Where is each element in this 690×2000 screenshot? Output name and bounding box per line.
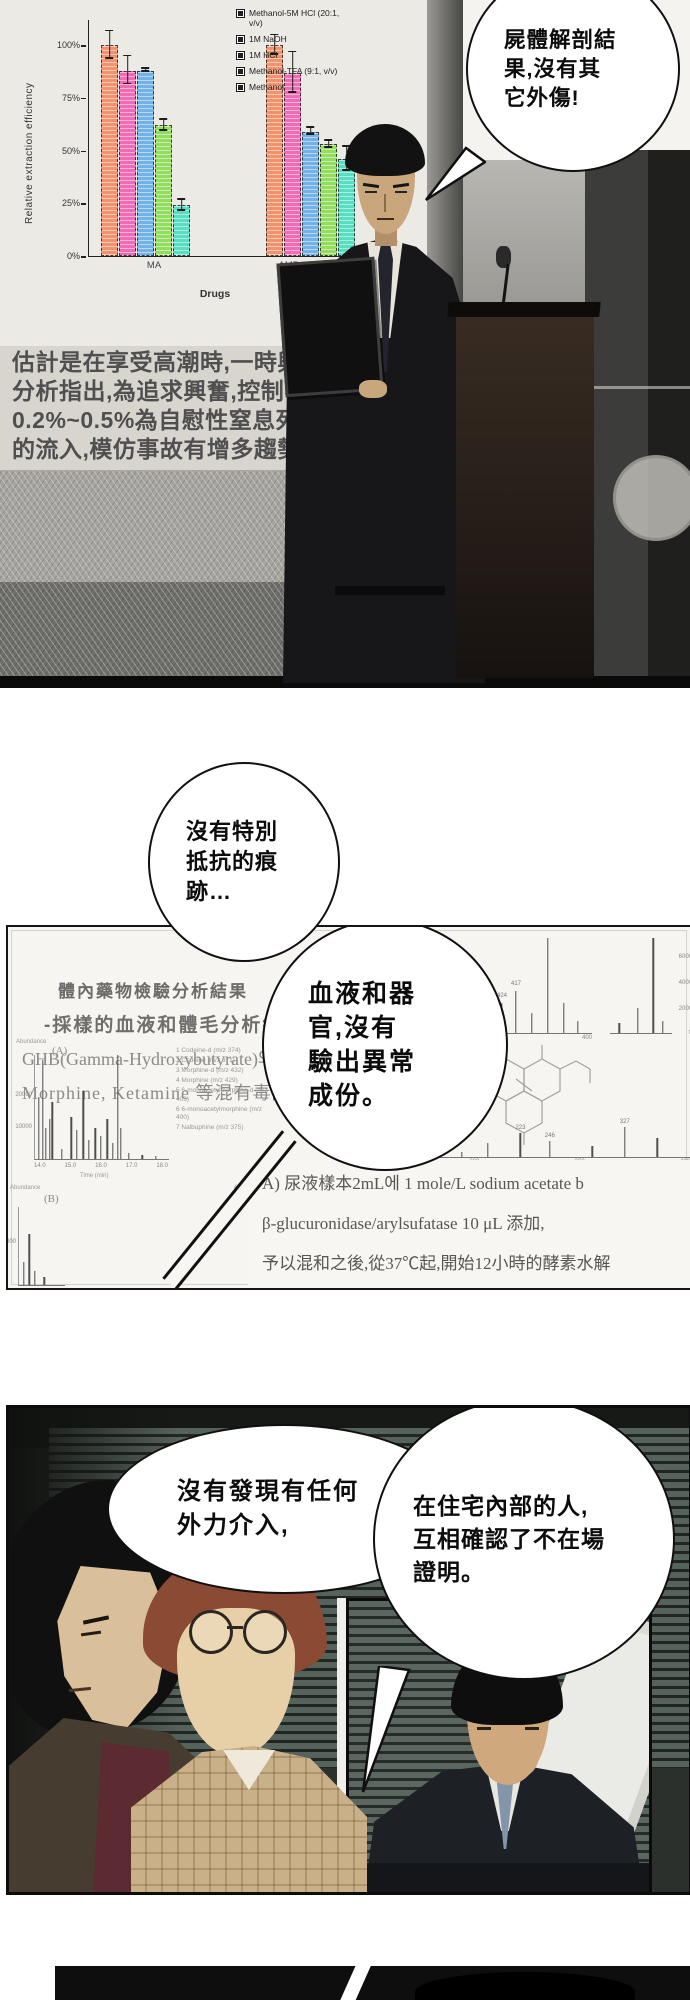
chromatogram-b (18, 1207, 65, 1286)
bubble-tail (424, 146, 486, 202)
legend-item: 1M NaOH (236, 34, 352, 44)
y-tick: 100% (57, 40, 80, 50)
eye (525, 1727, 539, 1730)
podium-body (456, 317, 594, 678)
category-ma: MA (147, 260, 161, 271)
procedure-text-line: β-glucuronidase/arylsufatase 10 μL 添加, (262, 1204, 690, 1244)
panel-conference: Relative extraction efficiency 100%75%50… (0, 0, 690, 688)
speech-bubble-alibi-line: 證明。 (413, 1556, 673, 1589)
tick-label: 4000 (679, 980, 690, 986)
y-tick: 50% (62, 146, 80, 156)
procedure-text-line: A) 尿液樣本2mL에 1 mole/L sodium acetate b (262, 1164, 690, 1204)
speech-bubble-autopsy-line: 果,沒有其 (504, 55, 678, 84)
y-tick: 25% (62, 198, 80, 208)
eye (365, 191, 377, 193)
procedure-text: A) 尿液樣本2mL에 1 mole/L sodium acetate bβ-g… (248, 1160, 690, 1288)
tick-label: 17.0 (126, 1163, 138, 1169)
podium-top (447, 302, 601, 317)
speech-bubble-blood-organs-line: 血液和器 (308, 977, 506, 1011)
peak-label: 223 (515, 1125, 525, 1131)
legend-marker-icon (236, 51, 245, 60)
speech-bubble-no-resistance-line: 抵抗的痕 (186, 847, 338, 877)
legend-label: 1M NaOH (249, 34, 287, 44)
bar-MA-Methanol (173, 205, 190, 256)
comic-page: Relative extraction efficiency 100%75%50… (0, 0, 690, 2000)
peak (76, 1130, 77, 1159)
bar-group-ma (101, 20, 190, 256)
peak (61, 1149, 62, 1159)
legend-item: Methanol-5M HCl (20:1, v/v) (236, 8, 352, 28)
mouth (377, 218, 394, 220)
detective-glasses-figure (131, 1550, 367, 1895)
peak (128, 1153, 129, 1159)
element (524, 1059, 560, 1101)
eye (395, 191, 407, 193)
peak (461, 1152, 462, 1157)
speech-bubble-alibi: 在住宅內部的人,互相確認了不在場證明。 (373, 1405, 675, 1680)
mass-spectrum-e (610, 933, 672, 1034)
eye (477, 1727, 491, 1730)
desk-man-hand (497, 1729, 539, 1777)
peak (637, 1008, 638, 1033)
peak (83, 1091, 84, 1159)
bar-MA-Methanol-TFA (9:1, v/v) (155, 125, 172, 256)
speech-bubble-blood-organs-line: 驗出異常 (308, 1045, 506, 1079)
speech-bubble-alibi-line: 在住宅內部的人, (413, 1490, 673, 1523)
legend-item: 1M HCl (236, 50, 352, 60)
chromatogram-a (34, 1055, 169, 1160)
glasses-left-lens (189, 1610, 233, 1654)
peak (549, 1141, 550, 1157)
chromatogram-b-label: (B) (44, 1193, 59, 1205)
legend-label: Methanol-TFA (9:1, v/v) (249, 66, 337, 76)
peak (619, 1023, 620, 1033)
tablet-device (276, 257, 383, 398)
tick-label: 20000 (15, 1092, 32, 1098)
abundance-label-b: Abundance (10, 1185, 40, 1191)
peak (520, 1133, 521, 1157)
bar-MA-1M HCl (137, 71, 154, 256)
speech-bubble-autopsy-line: 屍體解剖結 (504, 26, 678, 55)
legend-marker-icon (236, 9, 245, 18)
speech-bubble-blood-organs-line: 官,沒有 (308, 1011, 506, 1045)
tick-label: 2000 (679, 1006, 690, 1012)
peak (591, 1146, 592, 1157)
error-bar (127, 55, 129, 85)
speech-bubble-blood-organs: 血液和器官,沒有驗出異常成份。 (262, 925, 508, 1171)
peak (112, 1143, 113, 1159)
chromatogram-a-legend-line: 2 Codeine (m/z 371) (176, 1057, 272, 1066)
peak (487, 1143, 488, 1157)
error-bar (109, 30, 111, 60)
legend-label: Methanol-5M HCl (20:1, v/v) (249, 8, 352, 28)
glasses-bridge (227, 1626, 243, 1629)
tick-label: 20000 (6, 1239, 16, 1245)
peak (624, 1127, 625, 1157)
bar-MA-Methanol-5M HCl (20:1, v/v) (101, 45, 118, 256)
peak (657, 1138, 658, 1157)
podium (448, 246, 690, 678)
y-axis-ticks: 100%75%50%25%0% (40, 20, 84, 256)
peak-label: 327 (620, 1119, 630, 1125)
chromatogram-a-legend-line: 6 6-monoacetylmorphine (m/z 400) (176, 1106, 272, 1123)
peak-label: 246 (545, 1133, 555, 1139)
error-bar (145, 67, 147, 71)
peak (42, 1060, 43, 1159)
tick-label: 14.0 (34, 1163, 46, 1169)
speech-bubble-autopsy-line: 它外傷! (504, 84, 678, 113)
peak (531, 1013, 532, 1033)
speech-bubble-blood-organs-line: 成份。 (308, 1079, 506, 1113)
procedure-text-line: 予以混和之後,從37℃起,開始12小時的酵素水解 (262, 1244, 690, 1284)
peak (95, 1128, 96, 1159)
peak (155, 1156, 156, 1159)
speech-bubble-no-resistance-line: 沒有特別 (186, 817, 338, 847)
peak (45, 1128, 46, 1159)
diagonal-gap (331, 1966, 372, 2000)
legend-marker-icon (236, 83, 245, 92)
peak (88, 1140, 89, 1159)
chromatogram-a-legend-line: 7 Nalbuphine (m/z 375) (176, 1124, 272, 1133)
speech-bubble-alibi-line: 互相確認了不在場 (413, 1523, 673, 1556)
chromatogram-a-yticks: 2000010000 (10, 1055, 32, 1159)
legend-label: 1M HCl (249, 50, 277, 60)
peak (563, 1003, 564, 1033)
abundance-label-a: Abundance (16, 1039, 46, 1045)
peak (49, 1119, 50, 1159)
mass-spectrum-e-yticks: 6000400020000 (674, 931, 690, 1035)
desk (349, 1863, 652, 1895)
chromatogram-b-yticks: 20000 (6, 1207, 16, 1285)
hair-silhouette (415, 1972, 635, 2000)
peak (34, 1271, 35, 1285)
tick-label: 15.0 (65, 1163, 77, 1169)
element (426, 148, 485, 200)
tick-label: 18.0 (156, 1163, 168, 1169)
legend-item: Methanol (236, 82, 352, 92)
peak (28, 1234, 29, 1285)
chromatogram-a-legend-line: 4 Morphine (m/z 429) (176, 1077, 272, 1086)
y-tick: 75% (62, 93, 80, 103)
legend-label: Methanol (249, 82, 284, 92)
bar-MA-1M NaOH (119, 71, 136, 256)
chromatogram-a-legend-line: 5 6-monoacetylmorphine-d (m/z 403) (176, 1087, 272, 1104)
peak (515, 991, 516, 1033)
panel-lab-report: 體內藥物檢驗分析結果-採樣的血液和體毛分析結果GHB(Gamma-Hydroxy… (6, 925, 690, 1290)
peak (70, 1117, 71, 1159)
legend-marker-icon (236, 35, 245, 44)
tick-label: 16.0 (95, 1163, 107, 1169)
peak (100, 1136, 101, 1159)
brow (363, 183, 379, 188)
y-axis-label: Relative extraction efficiency (24, 48, 38, 258)
peak-label: 417 (511, 981, 521, 987)
legend-item: Methanol-TFA (9:1, v/v) (236, 66, 352, 76)
panel-next-sliver (55, 1966, 690, 2000)
peak (653, 938, 654, 1033)
error-bar (181, 198, 183, 211)
peak (120, 1128, 121, 1159)
nose (384, 194, 386, 212)
speech-bubble-no-resistance-line: 跡… (186, 877, 338, 907)
presenter-belt (335, 586, 445, 595)
alibi-bubble-tail (361, 1666, 421, 1794)
peak (52, 1102, 53, 1159)
chromatogram-a-xticks: 14.015.016.017.018.0 (34, 1163, 168, 1169)
presenter-hair (345, 124, 425, 176)
brow (393, 183, 409, 188)
y-tick: 0% (67, 251, 80, 261)
peak (23, 1262, 24, 1285)
peak (547, 938, 548, 1033)
peak (141, 1155, 142, 1159)
chromatogram-a-legend-line: 3 Morphine-d (m/z 432) (176, 1067, 272, 1076)
presenter-hand (359, 380, 387, 398)
peak (44, 1277, 45, 1285)
time-axis-label: Time (min) (80, 1173, 108, 1179)
peak (662, 1021, 663, 1033)
tick-label: 10000 (15, 1124, 32, 1130)
legend-marker-icon (236, 67, 245, 76)
glasses-right-lens (243, 1610, 287, 1654)
peak (117, 1055, 118, 1159)
chromatogram-a-legend-line: 1 Codeine-d (m/z 374) (176, 1047, 272, 1056)
peak (38, 1097, 39, 1159)
error-bar (163, 118, 165, 131)
chromatogram-a-legend: 1 Codeine-d (m/z 374)2 Codeine (m/z 371)… (176, 1047, 272, 1134)
peak (577, 1021, 578, 1033)
peak (107, 1119, 108, 1159)
chart-legend: Methanol-5M HCl (20:1, v/v)1M NaOH1M HCl… (236, 8, 352, 92)
element (363, 1666, 409, 1792)
speech-bubble-no-resistance: 沒有特別抵抗的痕跡… (148, 762, 340, 962)
panel-office: 沒有發現有任何外力介入, 在住宅內部的人,互相確認了不在場證明。 (6, 1405, 690, 1895)
tick-label: 6000 (679, 954, 690, 960)
